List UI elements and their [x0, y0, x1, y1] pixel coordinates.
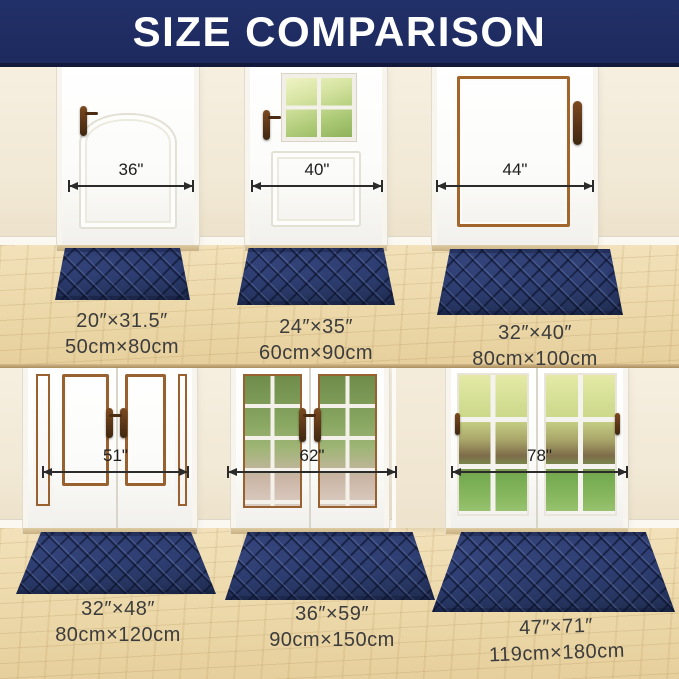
- mat-size-inches: 36″×59″: [232, 601, 432, 627]
- mat-size-cm: 80cm×100cm: [430, 346, 640, 368]
- mat-size-inches: 32″×48″: [18, 596, 218, 622]
- measure-tick: [626, 466, 628, 478]
- door-glass-garden: [457, 373, 529, 516]
- door-handle-icon: [615, 413, 620, 435]
- mat-size-inches: 24″×35″: [216, 314, 416, 340]
- door-window: [282, 74, 356, 141]
- door-handle-icon: [455, 413, 460, 435]
- door-glass-garden: [318, 374, 377, 508]
- door-40in: [250, 67, 382, 245]
- door-handle-icon: [573, 101, 582, 145]
- door-handle-icon: [80, 106, 87, 136]
- door-36in: [62, 67, 194, 245]
- mat-size-label: 36″×59″ 90cm×150cm: [232, 601, 432, 654]
- width-measure-40: 40": [252, 160, 382, 192]
- width-measure-44: 44": [437, 160, 593, 192]
- mat-size-cm: 90cm×150cm: [232, 627, 432, 653]
- sidelight-trim: [36, 374, 50, 505]
- door-copper-trim: [457, 76, 569, 227]
- measure-tick: [395, 466, 397, 478]
- doormat-47x71: [432, 532, 675, 612]
- scene-bottom-row: 51" 62" 78" 32″×48″ 80cm×120cm 36″×59″: [0, 368, 679, 679]
- door-handle-icon: [263, 110, 270, 140]
- door-44in: [437, 67, 593, 245]
- measure-tick: [592, 180, 594, 192]
- measure-arrow-icon: [252, 185, 382, 187]
- measure-value: 36": [69, 160, 193, 180]
- door-handle-icon: [106, 408, 113, 438]
- measure-value: 62": [228, 446, 396, 466]
- measure-value: 44": [437, 160, 593, 180]
- measure-tick: [381, 180, 383, 192]
- doormat-32x40: [437, 249, 623, 315]
- mat-size-inches: 20″×31.5″: [22, 308, 222, 334]
- doormat-24x35: [237, 248, 395, 305]
- mat-size-label: 32″×40″ 80cm×100cm: [430, 320, 640, 368]
- mat-size-cm: 60cm×90cm: [216, 340, 416, 366]
- sidelight-trim: [178, 374, 187, 505]
- measure-value: 40": [252, 160, 382, 180]
- width-measure-62: 62": [228, 446, 396, 478]
- mat-size-label: 47″×71″ 119cm×180cm: [443, 610, 670, 671]
- page-title: SIZE COMPARISON: [133, 8, 547, 56]
- sidelight-panel: [392, 368, 456, 528]
- door-handle-icon: [314, 408, 321, 442]
- measure-arrow-icon: [69, 185, 193, 187]
- measure-tick: [187, 466, 189, 478]
- measure-value: 78": [452, 446, 627, 466]
- door-handle-icon: [120, 408, 127, 438]
- mat-size-label: 20″×31.5″ 50cm×80cm: [22, 308, 222, 361]
- size-comparison-infographic: SIZE COMPARISON 36" 40": [0, 0, 679, 679]
- mat-size-label: 32″×48″ 80cm×120cm: [18, 596, 218, 649]
- measure-arrow-icon: [452, 471, 627, 473]
- doormat-32x48: [16, 532, 216, 594]
- measure-value: 51": [43, 446, 188, 466]
- width-measure-78: 78": [452, 446, 627, 478]
- measure-arrow-icon: [43, 471, 188, 473]
- measure-arrow-icon: [437, 185, 593, 187]
- measure-arrow-icon: [228, 471, 396, 473]
- door-glass-garden: [243, 374, 302, 508]
- header-banner: SIZE COMPARISON: [0, 0, 679, 63]
- doormat-36x59: [225, 532, 435, 600]
- mat-size-inches: 32″×40″: [430, 320, 640, 346]
- scene-top-row: 36" 40" 44" 20″×31.5″ 50cm×80cm 24″×35″: [0, 67, 679, 368]
- width-measure-51: 51": [43, 446, 188, 478]
- mat-size-cm: 80cm×120cm: [18, 622, 218, 648]
- door-glass-garden: [544, 373, 617, 516]
- mat-size-cm: 50cm×80cm: [22, 334, 222, 360]
- doormat-20x31: [55, 248, 190, 300]
- mat-size-label: 24″×35″ 60cm×90cm: [216, 314, 416, 367]
- measure-tick: [192, 180, 194, 192]
- width-measure-36: 36": [69, 160, 193, 192]
